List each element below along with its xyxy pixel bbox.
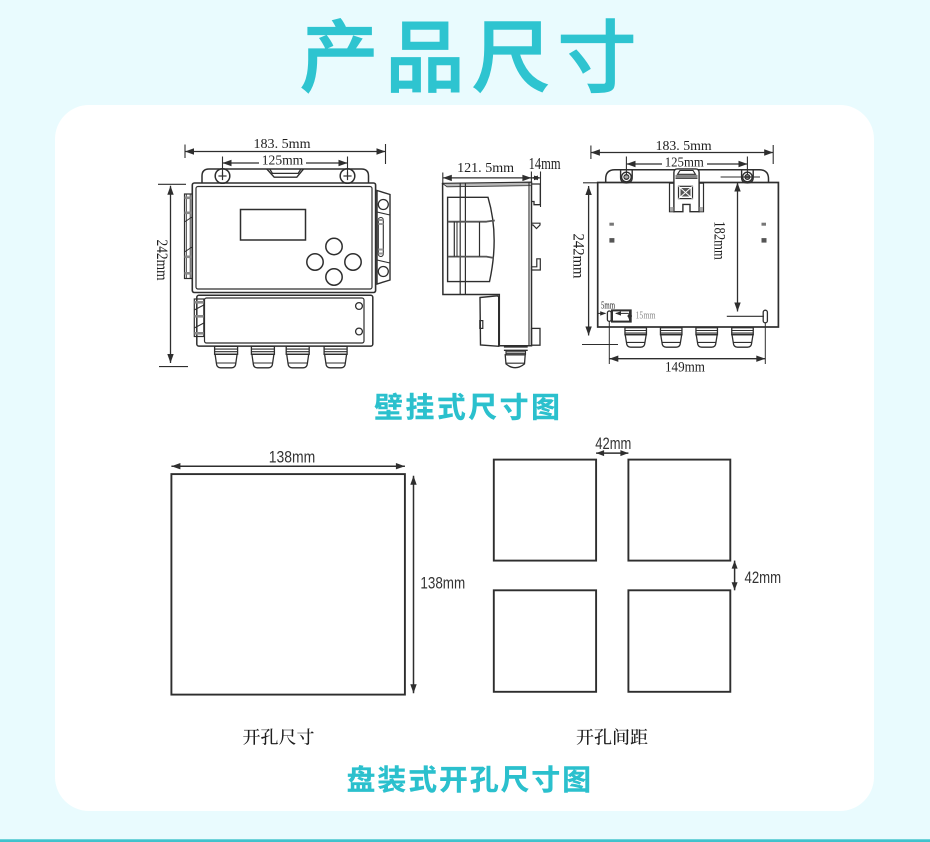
svg-text:182mm: 182mm — [711, 221, 728, 260]
svg-text:14mm: 14mm — [529, 154, 561, 173]
svg-text:183. 5mm: 183. 5mm — [254, 137, 311, 152]
svg-text:42mm: 42mm — [595, 434, 631, 453]
svg-text:121. 5mm: 121. 5mm — [457, 161, 514, 176]
svg-text:138mm: 138mm — [269, 447, 316, 466]
svg-text:149mm: 149mm — [665, 360, 705, 376]
svg-text:15mm: 15mm — [636, 310, 656, 322]
svg-text:138mm: 138mm — [420, 574, 465, 593]
svg-text:42mm: 42mm — [745, 568, 782, 587]
svg-text:125mm: 125mm — [665, 155, 704, 170]
svg-text:125mm: 125mm — [262, 153, 304, 168]
svg-text:242mm: 242mm — [570, 234, 587, 280]
svg-text:242mm: 242mm — [153, 240, 170, 281]
svg-text:183. 5mm: 183. 5mm — [656, 139, 712, 154]
